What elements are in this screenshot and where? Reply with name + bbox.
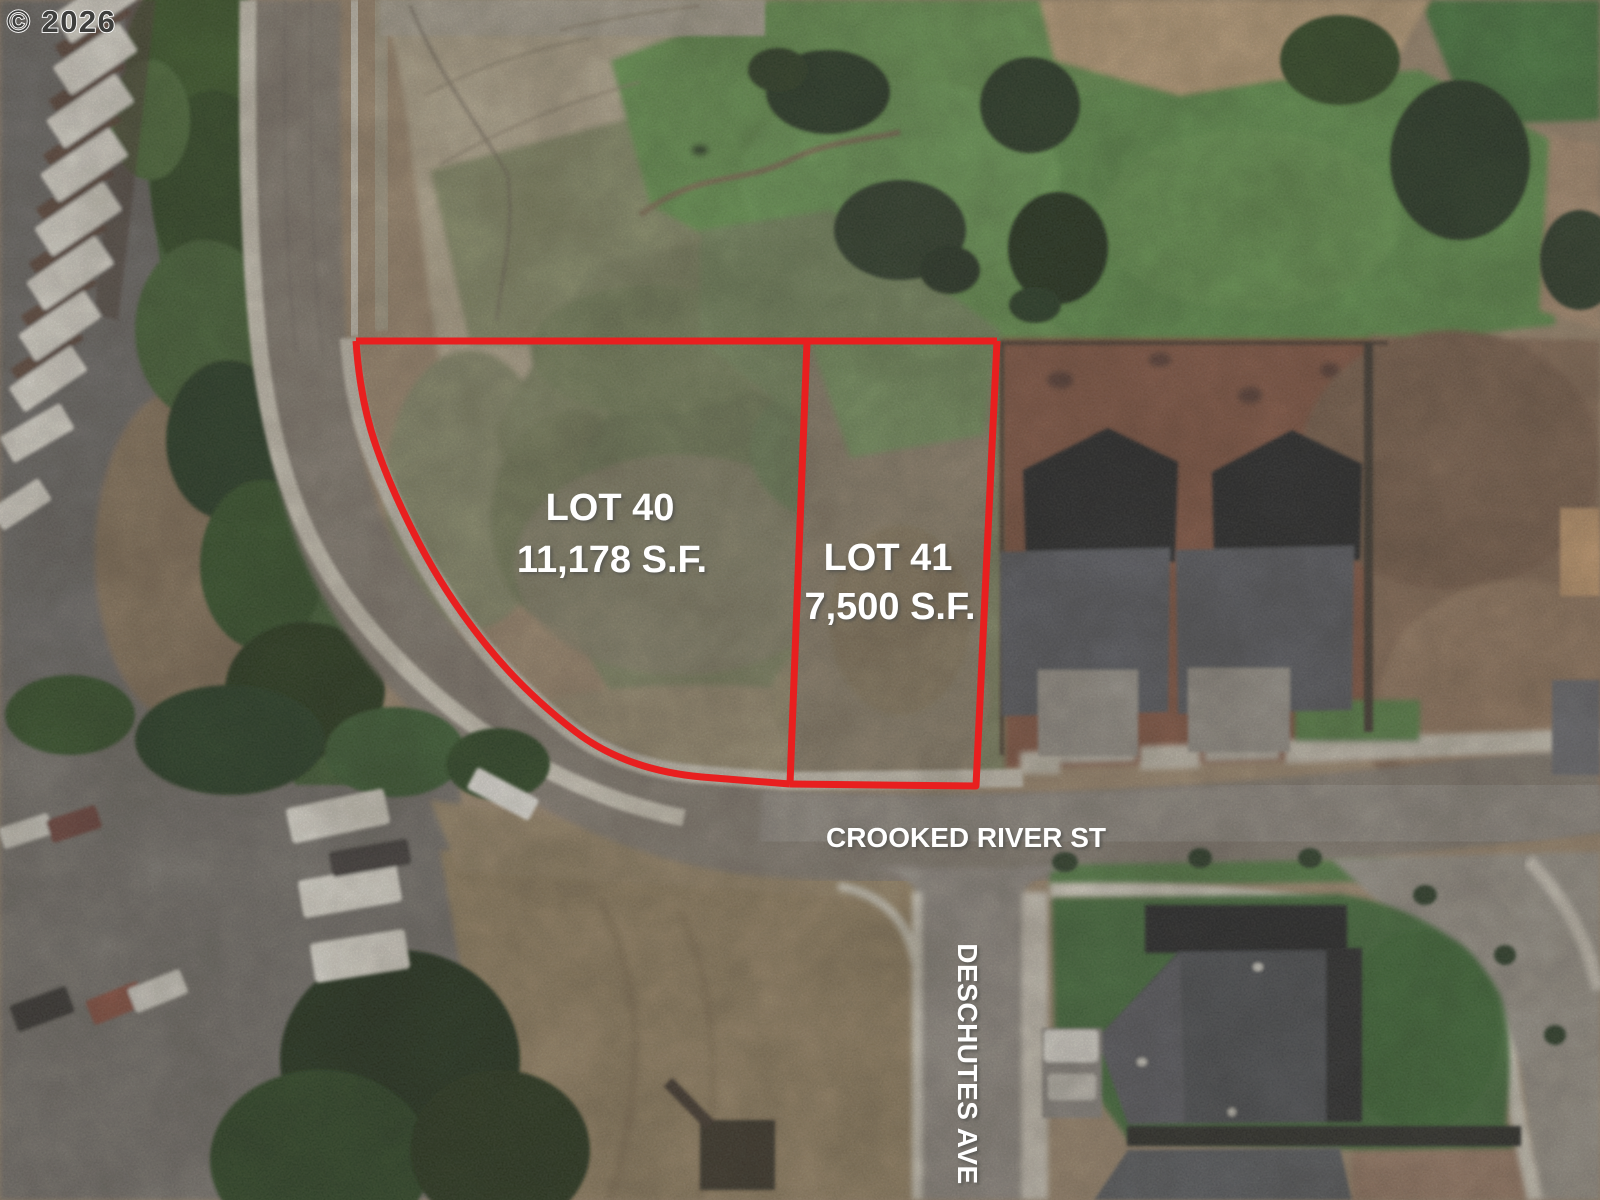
svg-text:DESCHUTES AVE: DESCHUTES AVE (952, 943, 983, 1184)
svg-text:7,500 S.F.: 7,500 S.F. (804, 586, 975, 628)
svg-text:CROOKED RIVER ST: CROOKED RIVER ST (826, 822, 1106, 853)
svg-text:LOT 41: LOT 41 (824, 537, 953, 579)
svg-text:© 2026: © 2026 (7, 4, 116, 39)
svg-text:11,178 S.F.: 11,178 S.F. (517, 539, 707, 581)
svg-text:LOT 40: LOT 40 (546, 487, 675, 529)
